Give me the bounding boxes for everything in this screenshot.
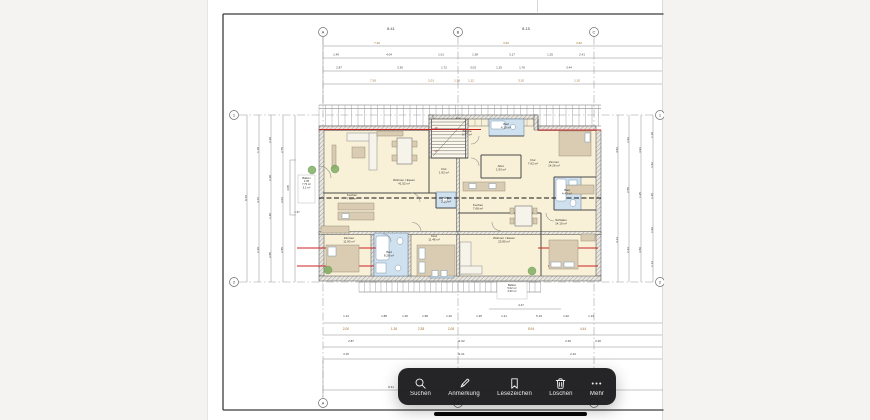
floorplan-drawing: ABCABC1212 8.418.157.263.623.521.494.041… [208,0,664,420]
anmerkung-button[interactable]: Anmerkung [448,377,480,397]
dim-label: 3.03 [470,66,476,70]
dim-label: 1.93 [650,227,654,233]
dim-label: 1.13 [588,314,594,318]
dim-label: 4.52 [615,147,619,153]
dim-label: 1.26 [402,314,408,318]
dim-label: 8.15 [522,26,531,31]
dim-label: 5.19 [536,314,542,318]
dim-label: 4.44 [580,327,586,331]
dim-label: 8.76 [244,195,248,201]
trash-icon [554,377,567,390]
grid-marker-label: A [322,401,325,406]
dim-label: 2.41 [579,53,585,57]
document-sheet[interactable]: ABCABC1212 8.418.157.263.623.521.494.041… [207,0,663,420]
grid-marker-label: A [322,30,325,35]
dim-label: 1.26 [391,327,397,331]
dim-label: 1.13 [650,261,654,267]
pencil-icon [458,377,471,390]
dim-label: 2.01 [428,79,434,83]
quicklook-toolbar: Suchen Anmerkung Lesezeichen Löschen Meh… [398,368,616,405]
dim-label: 3.52 [576,41,582,45]
dim-label: 4.04 [386,53,392,57]
dim-label: 2.87 [336,66,342,70]
dim-label: 2.43 [626,247,630,253]
dim-label: 4.05 [286,185,290,191]
dim-label: 1.76 [519,66,525,70]
stair-count: 18 [434,126,438,130]
dim-label: 1.49 [333,53,339,57]
dim-label: 1.52 [650,162,654,168]
bookmark-icon [508,377,521,390]
dim-label: 8.41 [388,385,394,389]
sheet-top-divider [537,0,538,12]
dim-label: 3.15 [343,352,349,356]
lesezeichen-button[interactable]: Lesezeichen [497,377,532,397]
dim-label: 1.38 [472,53,478,57]
dim-label: 1.32 [446,314,452,318]
room-label: Zimmer14.26 m² [548,160,560,167]
suchen-button[interactable]: Suchen [410,377,431,397]
dim-label: 11.01 [457,352,465,356]
dim-label: 1.35 [476,314,482,318]
dim-label: 1.37 [294,210,300,214]
room-label: Kochen7.68 m² [473,203,484,210]
screen: { "colors":{ "background":"#f4f3f1","she… [0,0,870,420]
dim-label: 2.75 [280,147,284,153]
dim-label: 2.36 [256,247,260,253]
dim-label: 2.38 [418,327,424,331]
dim-label: 2.08 [448,327,454,331]
search-icon [414,377,427,390]
dim-label: 4.47 [518,303,524,307]
dim-label: 2.26 [565,339,571,343]
dim-label: 1.21 [501,314,507,318]
dim-label: 1.72 [441,66,447,70]
dim-label: 1.25 [650,193,654,199]
dim-label: 1.25 [638,192,642,198]
dim-label: 2.55 [268,252,272,258]
dim-label: 5.94 [528,327,534,331]
loeschen-label: Löschen [549,391,572,397]
dim-label: 4.13 [615,237,619,243]
dim-label: 2.03 [280,197,284,203]
dim-label: 1.13 [343,314,349,318]
dim-label: 1.93 [626,137,630,143]
suchen-label: Suchen [410,391,431,397]
dim-label: 3.17 [509,53,515,57]
grid-marker-label: B [457,30,460,35]
dim-label: 1.62 [563,314,569,318]
dim-label: 1.25 [547,53,553,57]
loeschen-button[interactable]: Löschen [549,377,572,397]
dim-label: 7.26 [370,79,376,83]
dim-label: 4.72 [256,197,260,203]
dim-label: 2.38 [268,175,272,181]
mehr-button[interactable]: Mehr [590,377,604,397]
dim-label: 3.50 [638,247,642,253]
mehr-label: Mehr [590,391,604,397]
dim-label: 3.62 [503,41,509,45]
dim-label: 1.88 [381,314,387,318]
dim-label: 11.62 [457,339,465,343]
room-label: Zimmer11.90 m² [343,236,355,243]
dim-label: 2.55 [626,187,630,193]
dim-label: 1.68 [422,314,428,318]
dim-label: 2.00 [343,327,349,331]
anmerkung-label: Anmerkung [448,391,480,397]
dim-label: 1.25 [496,66,502,70]
dim-label: 1.18 [256,147,260,153]
dim-label: 2.18 [268,137,272,143]
area-label: Balkon4.057.73 m²5.2 m² [302,176,311,189]
dim-label: 1.40 [268,213,272,219]
room-label: Treppe3.77 m² [462,129,472,136]
dim-label: 1.38 [454,79,460,83]
dim-label: 1.12 [468,79,474,83]
area-label: Balkon5.02 m²2.60 m² [507,283,516,293]
stair-count: 17 [434,149,438,153]
dim-label: 1.10 [574,79,580,83]
lesezeichen-label: Lesezeichen [497,391,532,397]
dim-label: 2.87 [348,339,354,343]
dim-label: 1.18 [650,132,654,138]
home-indicator[interactable] [434,412,587,416]
dim-label: 8.41 [387,26,396,31]
grid-marker-label: C [593,30,596,35]
dim-label: 3.91 [638,147,642,153]
ellipsis-icon [590,377,603,390]
room-label: Schlafen14.10 m² [555,218,567,225]
dim-label: 1.01 [438,53,444,57]
room-label: Kochen7.08 m² [347,193,358,200]
dim-label: 3.10 [518,79,524,83]
dim-label: 7.26 [374,41,380,45]
dim-label: 2.36 [397,66,403,70]
dim-label: 3.44 [566,66,572,70]
dim-label: 2.55 [280,247,284,253]
dim-label: 3.26 [595,339,601,343]
dim-label: 2.22 [570,352,576,356]
